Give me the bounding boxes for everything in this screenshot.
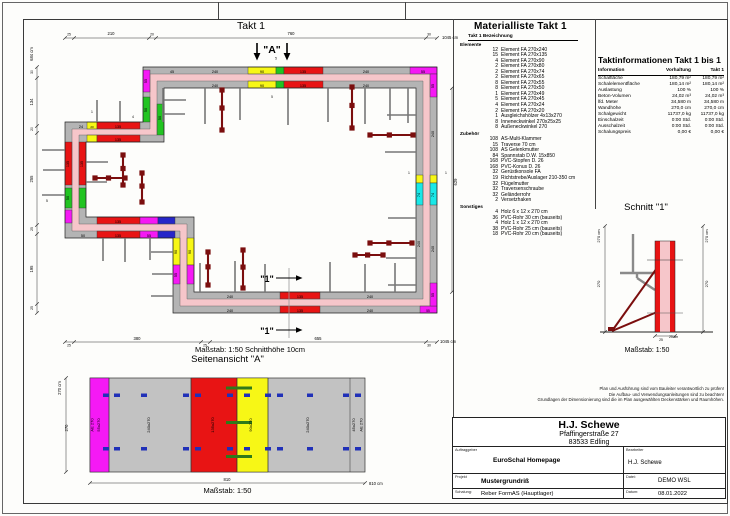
- dim-label: 655: [315, 336, 323, 341]
- tie-plate: [106, 175, 111, 180]
- dim-label: 240: [363, 84, 369, 88]
- clamp: [265, 394, 271, 398]
- formwork-elements: [65, 67, 437, 313]
- date-value: 08.01.2022: [658, 491, 687, 497]
- dim-label: 270 cm: [57, 381, 62, 395]
- material-group-rows: 4 Holz 6 x 12 x 270 cm 36 PVC-Rohr 30 cm…: [460, 210, 592, 238]
- dim-label: 55: [421, 70, 425, 74]
- dim-label: 240: [367, 309, 373, 313]
- dim-label: 1045 cm: [440, 339, 457, 344]
- clamp: [195, 447, 201, 451]
- dim-label: 1045 cm: [442, 35, 459, 40]
- tie-plate: [139, 170, 144, 175]
- dim-label: 135: [300, 84, 306, 88]
- dim-label: 240x270: [146, 417, 151, 433]
- tie-plate: [410, 132, 415, 137]
- material-group-rows: 12 Element FA 270x240 15 Element FA 270x…: [460, 48, 592, 131]
- dim-label: 240: [417, 241, 421, 247]
- material-group: Zubehör 108 AS-Multi-Klammer 15 Traverse…: [460, 132, 592, 204]
- dim-label: 1: [445, 171, 447, 175]
- material-row: 18 PVC-Rohr 20 cm (bauseits): [460, 232, 592, 238]
- material-label: Außeneckwinkel 270: [501, 125, 592, 131]
- tie-plate: [352, 252, 357, 257]
- dim-label: 55: [426, 309, 430, 313]
- tie-plate: [240, 247, 245, 252]
- dim-label: 270: [704, 280, 709, 287]
- dim-label: "1": [260, 326, 274, 336]
- wall-braces: [42, 88, 416, 296]
- dim-label: 30: [427, 344, 431, 348]
- takt-info-header-row: Information Vorhaltung Takt 1: [598, 68, 724, 76]
- dim-label: 4: [132, 115, 134, 119]
- tie-plate: [240, 265, 245, 270]
- floor-plan: 2521020760301045 cm684 cm301342025525195…: [25, 12, 465, 357]
- title-block-head: H.J. Schewe Pfaffingerstraße 27 83533 Ed…: [453, 418, 725, 447]
- wall-concrete: [65, 67, 437, 313]
- file-cell: Datei: DEMO WSL: [623, 474, 725, 489]
- dim-label: 55: [147, 234, 151, 238]
- dim-label: 25: [659, 338, 663, 342]
- clamp: [244, 394, 250, 398]
- dim-label: 50: [66, 196, 70, 200]
- tie-plate: [349, 84, 354, 89]
- dim-label: 50: [144, 108, 148, 112]
- tie-plate: [120, 152, 125, 157]
- dim-label: 134: [29, 98, 34, 106]
- tie-plate: [219, 127, 224, 132]
- clamp: [195, 394, 201, 398]
- tie-plate: [92, 175, 97, 180]
- clamp: [141, 447, 147, 451]
- tie-plate: [387, 132, 392, 137]
- tie-plate: [205, 249, 210, 254]
- dim-label: 30: [427, 33, 431, 37]
- dim-label: 55: [431, 84, 435, 88]
- push-pull-props: [608, 265, 660, 331]
- dim-label: 1: [408, 171, 410, 175]
- material-list-header: Takt 1 Bezeichnung: [468, 34, 578, 41]
- takt-info-row: Schalungspreis 0,00 € 0,00 €: [598, 130, 724, 136]
- tie-anchors: [92, 84, 415, 290]
- dim-label: 240: [363, 70, 369, 74]
- dim-label: 270: [64, 424, 69, 432]
- dim-label: 74: [431, 193, 435, 197]
- clamp: [355, 394, 361, 398]
- dim-label: 5: [46, 199, 48, 203]
- dim-label: 1: [91, 110, 93, 114]
- clamp: [343, 447, 349, 451]
- dim-label: 20: [90, 125, 94, 129]
- dim-label: 25: [30, 306, 34, 310]
- formwork-cell: Schalung: Reber FormAS (Hauptlager): [453, 489, 623, 499]
- band-inner-outlines: [72, 74, 430, 306]
- dim-label: 629: [453, 178, 458, 186]
- dim-label: 55: [174, 273, 178, 277]
- dim-label: 135: [115, 138, 121, 142]
- section-title: Schnitt "1": [586, 202, 706, 213]
- editor-value: H.J. Schewe: [628, 460, 662, 466]
- tie-plate: [139, 199, 144, 204]
- info-vorhaltung: 0,00 €: [651, 130, 691, 136]
- dim-label: 135: [115, 234, 121, 238]
- dim-label: 135: [115, 125, 121, 129]
- dim-label: 255: [29, 175, 34, 183]
- material-qty: 18: [460, 232, 501, 238]
- dim-label: 55: [431, 293, 435, 297]
- dim-label: 135: [115, 220, 121, 224]
- section-caption: Maßstab: 1:50: [587, 347, 707, 354]
- clamp: [114, 447, 120, 451]
- scaffold-console: [620, 234, 655, 290]
- section-labels: 270 cm270270 cm2702525 cm: [596, 229, 709, 342]
- formwork-band-inner: [79, 81, 423, 299]
- dim-label: 90: [188, 250, 192, 254]
- dim-label: 20: [30, 127, 34, 131]
- title-block: H.J. Schewe Pfaffingerstraße 27 83533 Ed…: [452, 417, 726, 499]
- dim-label: 25 cm: [669, 335, 678, 339]
- dim-label: 45: [170, 70, 174, 74]
- dim-label: 270 cm: [704, 229, 709, 243]
- wall-outlines: [65, 67, 437, 313]
- dim-label: 90: [174, 250, 178, 254]
- client-cell: Auftraggeber EuroSchal Homepage: [453, 447, 623, 474]
- dim-label: 25: [67, 344, 71, 348]
- dim-label: 240: [212, 70, 218, 74]
- tie-plate: [380, 252, 385, 257]
- disclaimer-lines: Plan und Ausführung sind vom Bauleiter v…: [460, 386, 724, 403]
- drawing-sheet: Takt 1: [0, 0, 730, 516]
- dim-label: 240: [227, 295, 233, 299]
- clamp: [227, 447, 233, 451]
- dim-label: 195: [29, 265, 34, 273]
- section-wall: [647, 241, 683, 332]
- clamp: [114, 394, 120, 398]
- dim-label: "A": [263, 44, 281, 56]
- material-group: Elemente 12 Element FA 270x240 15 Elemen…: [460, 43, 592, 131]
- clamp: [355, 447, 361, 451]
- dim-label: 135: [66, 161, 70, 167]
- col-vorhaltung: Vorhaltung: [651, 68, 691, 75]
- tie-plate: [205, 282, 210, 287]
- dim-label: 74: [417, 193, 421, 197]
- material-list: Materialliste Takt 1 Takt 1 Bezeichnung …: [460, 19, 592, 238]
- col-takt1: Takt 1: [691, 68, 724, 75]
- dim-label: 24: [79, 125, 83, 129]
- tie-plate: [139, 183, 144, 188]
- tie-plate: [205, 264, 210, 269]
- takt-info-title: Taktinformationen Takt 1 bis 1: [598, 55, 724, 65]
- tie-plate: [367, 132, 372, 137]
- dim-label: 5: [275, 57, 277, 61]
- material-row: 8 Außeneckwinkel 270: [460, 125, 592, 131]
- editor-cell: Bearbeiter H.J. Schewe: [623, 447, 725, 474]
- company-city: 83533 Edling: [453, 439, 725, 447]
- dim-label: 810: [224, 477, 232, 482]
- date-cell: Datum: 08.01.2022: [623, 489, 725, 499]
- dim-label: 240: [227, 309, 233, 313]
- material-qty: 2: [460, 198, 501, 204]
- clamp: [307, 447, 313, 451]
- clamp: [307, 394, 313, 398]
- clamp: [103, 394, 109, 398]
- file-value: DEMO WSL: [658, 478, 691, 484]
- client-label: Auftraggeber: [455, 448, 477, 452]
- tie-plate: [409, 240, 414, 245]
- panel-divider: [595, 19, 596, 209]
- plan-caption: Maßstab: 1:50 Schnitthöhe 10cm: [130, 345, 370, 354]
- col-information: Information: [598, 68, 651, 75]
- company-street: Pfaffingerstraße 27: [453, 431, 725, 439]
- dim-label: 90x270: [248, 418, 253, 432]
- tie-plate: [219, 105, 224, 110]
- dim-label: 240: [431, 131, 435, 137]
- file-label: Datei:: [626, 475, 636, 479]
- dim-label: 135: [300, 70, 306, 74]
- editor-label: Bearbeiter: [626, 448, 644, 452]
- dim-label: 240x270: [305, 417, 310, 433]
- tie-plate: [219, 87, 224, 92]
- clamp: [141, 394, 147, 398]
- material-label: Versetzhaken: [501, 198, 592, 204]
- tie-plate: [386, 240, 391, 245]
- tie-plate: [120, 166, 125, 171]
- dim-label: 760: [288, 31, 296, 36]
- takt-info-rows: Schalfläche 180,79 m² 180,79 m² Schalele…: [598, 76, 724, 137]
- project-value: Mustergrundriß: [481, 478, 529, 485]
- dim-label: 20: [150, 33, 154, 37]
- dim-label: AE 270: [90, 418, 95, 432]
- company-name: H.J. Schewe: [453, 418, 725, 431]
- project-cell: Projekt Mustergrundriß: [453, 474, 623, 489]
- material-group: Sonstiges 4 Holz 6 x 12 x 270 cm 36 PVC-…: [460, 205, 592, 238]
- dim-label: 240: [367, 295, 373, 299]
- dim-label: 50: [158, 116, 162, 120]
- dim-label: 135: [80, 161, 84, 167]
- dim-label: 50: [81, 234, 85, 238]
- dim-label: 270: [596, 280, 601, 287]
- dim-label: 30: [30, 70, 34, 74]
- disclaimer-line: Grundlagen der Dimensionierung sind die …: [460, 397, 724, 403]
- material-qty: 8: [460, 125, 501, 131]
- info-name: Schalungspreis: [598, 130, 651, 136]
- dim-label: 135x270: [210, 417, 215, 433]
- clamp: [244, 447, 250, 451]
- formwork-band-outer: [65, 67, 437, 313]
- dim-label: 45x270: [351, 418, 356, 432]
- dim-label: 55: [144, 79, 148, 83]
- dim-label: 240: [212, 84, 218, 88]
- dim-label: 270 cm: [596, 229, 601, 243]
- tie-plate: [120, 182, 125, 187]
- formwork-value: Reber FormAS (Hauptlager): [481, 491, 554, 497]
- dim-label: AE 270: [359, 418, 364, 432]
- clamp: [183, 447, 189, 451]
- dim-label: 55x270: [96, 418, 101, 432]
- material-list-title: Materialliste Takt 1: [474, 21, 592, 32]
- dim-label: 210: [108, 31, 116, 36]
- dim-label: 240: [431, 246, 435, 252]
- dim-label: 684 cm: [29, 47, 34, 61]
- dim-label: 25: [30, 227, 34, 231]
- clamp: [183, 394, 189, 398]
- dim-label: 380: [134, 336, 142, 341]
- clamp: [265, 447, 271, 451]
- date-label: Datum:: [626, 490, 638, 494]
- dim-label: 135: [297, 295, 303, 299]
- dim-label: 90: [260, 84, 264, 88]
- clamp: [277, 447, 283, 451]
- tie-plate: [122, 175, 127, 180]
- tie-plate: [365, 252, 370, 257]
- takt-info-table: Taktinformationen Takt 1 bis 1 Informati…: [598, 55, 724, 136]
- dim-label: 810 cm: [369, 481, 383, 486]
- material-list-groups: Elemente 12 Element FA 270x240 15 Elemen…: [460, 43, 592, 239]
- clamp: [343, 394, 349, 398]
- tie-plate: [367, 240, 372, 245]
- project-label: Projekt: [455, 475, 467, 479]
- side-view-caption: Maßstab: 1:50: [160, 486, 295, 495]
- clamp: [227, 394, 233, 398]
- title-block-grid: Auftraggeber EuroSchal Homepage Bearbeit…: [453, 447, 725, 499]
- formwork-label: Schalung:: [455, 490, 472, 494]
- disclaimer: Plan und Ausführung sind vom Bauleiter v…: [460, 386, 724, 403]
- material-label: PVC-Rohr 20 cm (bauseits): [501, 232, 592, 238]
- section-view: 270 cm270270 cm2702525 cm: [595, 220, 727, 360]
- client-value: EuroSchal Homepage: [493, 457, 560, 464]
- dim-label: 5: [271, 95, 273, 99]
- info-takt1: 0,00 €: [691, 130, 724, 136]
- dim-label: "1": [260, 274, 274, 284]
- clamp: [277, 394, 283, 398]
- tie-plate: [349, 125, 354, 130]
- material-group-rows: 108 AS-Multi-Klammer 15 Traverse 70 cm 1…: [460, 137, 592, 204]
- tie-plate: [349, 103, 354, 108]
- dim-label: 25: [67, 33, 71, 37]
- clamp: [103, 447, 109, 451]
- material-row: 2 Versetzhaken: [460, 198, 592, 204]
- dim-label: 90: [260, 70, 264, 74]
- tie-plate: [240, 285, 245, 290]
- dim-label: 135: [297, 309, 303, 313]
